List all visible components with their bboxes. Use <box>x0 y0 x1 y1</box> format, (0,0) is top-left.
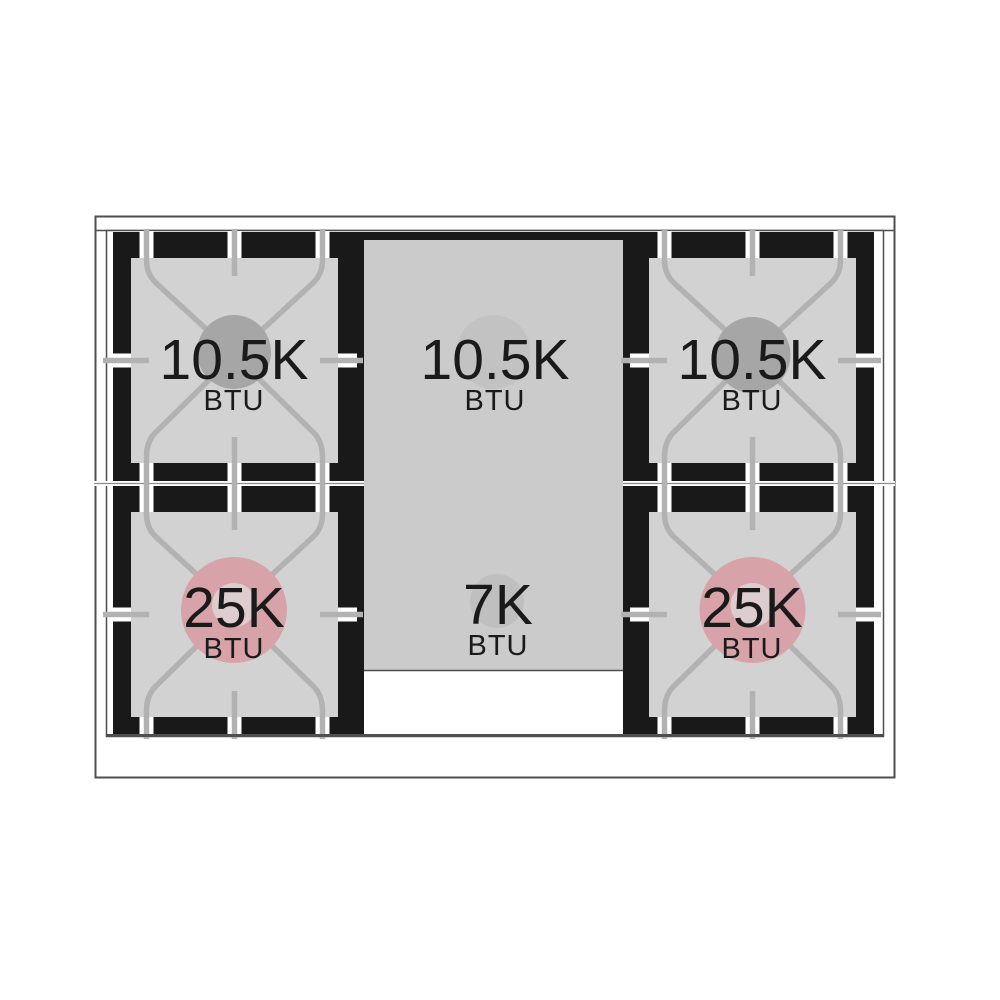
cooktop-diagram-graphics <box>0 0 1000 1000</box>
burner-btu-value: 10.5K <box>678 334 827 386</box>
burner-label-top-center: 10.5K BTU <box>421 334 570 416</box>
burner-label-top-left: 10.5K BTU <box>160 334 309 416</box>
burner-btu-value: 25K <box>701 582 802 634</box>
burner-label-bottom-left: 25K BTU <box>183 582 284 664</box>
burner-btu-value: 25K <box>183 582 284 634</box>
burner-label-bottom-center: 7K BTU <box>463 579 533 661</box>
burner-btu-value: 7K <box>463 579 533 631</box>
griddle-front-strip <box>364 670 623 735</box>
burner-label-bottom-right: 25K BTU <box>701 582 802 664</box>
cooktop-diagram: 10.5K BTU 10.5K BTU 10.5K BTU 25K BTU 7K… <box>0 0 1000 1000</box>
burner-btu-unit: BTU <box>463 631 533 661</box>
burner-label-top-right: 10.5K BTU <box>678 334 827 416</box>
burner-btu-value: 10.5K <box>421 334 570 386</box>
burner-btu-value: 10.5K <box>160 334 309 386</box>
